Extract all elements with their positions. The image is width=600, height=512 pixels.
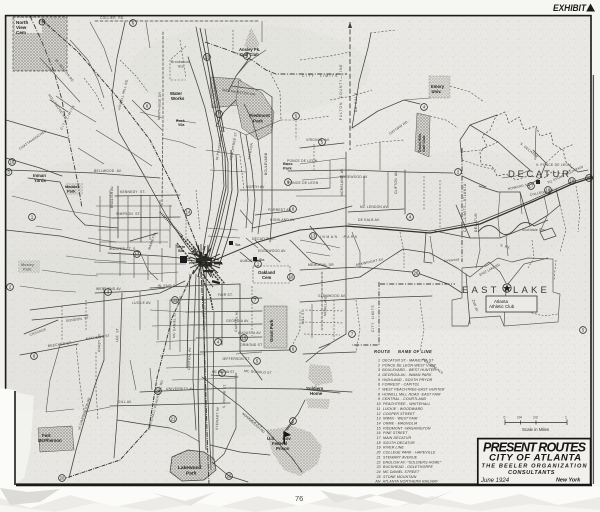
svg-text:LEE ST.: LEE ST. [115, 327, 120, 342]
svg-text:BELLWOOD AV.: BELLWOOD AV. [94, 169, 122, 173]
svg-text:NORTH AV: NORTH AV [246, 185, 265, 189]
svg-text:13 IRWIN - WEST FAIR: 13 IRWIN - WEST FAIR [377, 417, 418, 421]
svg-text:DECATUR ST.: DECATUR ST. [252, 237, 276, 241]
svg-text:VIRGINIA AV.: VIRGINIA AV. [306, 138, 330, 142]
svg-text:MORELAND AV.: MORELAND AV. [340, 168, 344, 196]
svg-text:16: 16 [10, 160, 15, 165]
svg-text:17 MAIN DECATUR: 17 MAIN DECATUR [377, 436, 412, 440]
svg-text:10: 10 [289, 275, 294, 280]
svg-text:AUGUSTA AV: AUGUSTA AV [238, 331, 261, 335]
svg-text:EDGEWOOD AV: EDGEWOOD AV [340, 175, 368, 179]
svg-text:4 GEORGIA AV.- INMAN PARK: 4 GEORGIA AV.- INMAN PARK [378, 373, 432, 377]
svg-text:S. PRYOR ST.: S. PRYOR ST. [222, 384, 227, 408]
svg-text:ORMOND ST: ORMOND ST [240, 343, 262, 347]
svg-text:V. PONCE DE LEON: V. PONCE DE LEON [536, 163, 571, 167]
svg-text:7 WEST PEACHTREE-EAST HUNTER: 7 WEST PEACHTREE-EAST HUNTER [378, 388, 445, 392]
svg-text:STEWART AV: STEWART AV [215, 406, 220, 430]
svg-text:CITY LIMITS: CITY LIMITS [302, 74, 339, 78]
svg-text:24 MC DANIEL STREET: 24 MC DANIEL STREET [376, 470, 420, 474]
svg-text:RockVlla: RockVlla [176, 119, 185, 127]
svg-text:W. FAIR ST.: W. FAIR ST. [158, 284, 179, 288]
svg-text:5 HIGHLAND - SOUTH PRYOR: 5 HIGHLAND - SOUTH PRYOR [378, 378, 433, 382]
svg-text:17: 17 [529, 184, 534, 189]
svg-text:18 SOUTH DECATUR: 18 SOUTH DECATUR [377, 441, 416, 445]
svg-text:25 STONE MOUNTAIN: 25 STONE MOUNTAIN [376, 475, 417, 479]
svg-text:GLENWOOD AV.: GLENWOOD AV. [318, 294, 346, 298]
svg-text:Sta: Sta [235, 243, 240, 247]
svg-text:THE BEELER ORGANIZATION: THE BEELER ORGANIZATION [482, 463, 588, 469]
svg-text:ASHBY ST.: ASHBY ST. [97, 333, 102, 352]
svg-text:ROUTE NAME OF LINE: ROUTE NAME OF LINE [374, 349, 432, 354]
svg-text:18: 18 [570, 179, 575, 184]
svg-text:1/4: 1/4 [517, 416, 522, 420]
svg-text:1/2: 1/2 [533, 416, 538, 420]
svg-text:21 STEWART AVENUE: 21 STEWART AVENUE [376, 455, 418, 459]
svg-text:1 DECATUR ST.- MARIETTA ST: 1 DECATUR ST.- MARIETTA ST [378, 358, 434, 362]
svg-text:13: 13 [135, 252, 140, 257]
svg-text:12 COOPER STREET: 12 COOPER STREET [377, 412, 416, 416]
svg-text:FAIR ST.: FAIR ST. [218, 293, 233, 297]
svg-text:20 COLLEGE PARK - HAPEVILLE: 20 COLLEGE PARK - HAPEVILLE [376, 451, 436, 455]
svg-text:21: 21 [171, 417, 176, 422]
svg-text:CITY LIMITS: CITY LIMITS [371, 305, 375, 332]
svg-text:15: 15 [242, 336, 247, 341]
svg-text:22 ENGLISH AV.-"SOLDIERS HOME: 22 ENGLISH AV.-"SOLDIERS HOME" [376, 460, 442, 464]
svg-text:COLLIER RD.: COLLIER RD. [100, 16, 125, 20]
svg-text:DE KALB AV.: DE KALB AV. [358, 218, 380, 222]
svg-text:CITY OF ATLANTA: CITY OF ATLANTA [489, 452, 581, 463]
svg-text:EDGEWOOD AV.: EDGEWOOD AV. [258, 249, 286, 253]
svg-text:InmanYards: InmanYards [33, 173, 47, 183]
svg-text:June 1924: June 1924 [480, 478, 510, 484]
svg-text:MEMORIAL DR: MEMORIAL DR [308, 263, 334, 267]
svg-text:1: 1 [565, 416, 567, 420]
svg-text:8 HOWELL MILL ROAD -EAST FAIR: 8 HOWELL MILL ROAD -EAST FAIR [378, 392, 441, 396]
svg-text:15 PIEDMONT -WASHINGTON: 15 PIEDMONT -WASHINGTON [377, 426, 431, 430]
svg-text:LAKE: LAKE [513, 285, 550, 296]
svg-text:CONSULTANTS: CONSULTANTS [508, 470, 555, 476]
svg-text:Druid HillsGolf Club: Druid HillsGolf Club [418, 134, 426, 152]
svg-text:Ansley Pk.Golf Club: Ansley Pk.Golf Club [239, 47, 260, 57]
svg-text:Sta: Sta [178, 65, 184, 69]
svg-text:Brookwood: Brookwood [171, 60, 190, 64]
svg-text:FULTON COUNTY—LINE: FULTON COUNTY—LINE [339, 64, 343, 120]
svg-text:BOULEVARD: BOULEVARD [264, 152, 268, 175]
svg-text:LUCILE AV.: LUCILE AV. [132, 301, 152, 305]
svg-text:CLIFTON AV.: CLIFTON AV. [394, 171, 398, 194]
svg-text:9 CENTRAL - COURTLAND: 9 CENTRAL - COURTLAND [378, 397, 427, 401]
svg-text:New York: New York [556, 478, 581, 484]
svg-text:20: 20 [60, 476, 65, 481]
svg-text:PONCE DE LEON: PONCE DE LEON [287, 159, 318, 163]
svg-text:11: 11 [173, 298, 178, 303]
svg-text:11 LUCKIE - WOODWARD: 11 LUCKIE - WOODWARD [377, 407, 424, 411]
svg-text:2 PONCE DE LEON-WEST VIEW: 2 PONCE DE LEON-WEST VIEW [377, 363, 436, 367]
svg-text:16: 16 [546, 188, 551, 193]
svg-text:25: 25 [227, 474, 232, 479]
svg-text:DILL AV.: DILL AV. [118, 400, 132, 404]
svg-text:26: 26 [414, 271, 419, 276]
svg-text:MC LENDON AV.: MC LENDON AV. [360, 205, 389, 209]
svg-text:23 BUCKHEAD - OGLETHORPE: 23 BUCKHEAD - OGLETHORPE [376, 465, 434, 469]
svg-text:16 PINE STREET: 16 PINE STREET [377, 431, 409, 435]
svg-text:DECATUR: DECATUR [474, 213, 478, 232]
svg-text:HILL ST: HILL ST [301, 310, 305, 324]
svg-text:14: 14 [186, 210, 191, 215]
svg-text:10 PEACHTREE - WHITEHALL: 10 PEACHTREE - WHITEHALL [377, 402, 431, 406]
svg-text:ENGLISH AV.: ENGLISH AV. [110, 185, 114, 208]
svg-text:MORELAND: MORELAND [323, 295, 328, 316]
svg-text:FORREST AV.: FORREST AV. [268, 208, 292, 212]
svg-text:24: 24 [156, 389, 161, 394]
svg-text:6 FORREST - CAPITOL: 6 FORREST - CAPITOL [378, 383, 420, 387]
svg-text:CENTRAL AV: CENTRAL AV [187, 347, 192, 370]
svg-text:Scale in Miles: Scale in Miles [522, 427, 550, 432]
svg-text:GEORGIA AV.: GEORGIA AV. [226, 319, 249, 323]
svg-text:UNIVERSITY AV.: UNIVERSITY AV. [166, 387, 195, 391]
svg-text:MC MILLAN ST: MC MILLAN ST [212, 370, 234, 374]
svg-text:14 ORME - MAGNOLIA: 14 ORME - MAGNOLIA [377, 422, 418, 426]
svg-text:JEFFERSON ST.: JEFFERSON ST. [222, 357, 251, 361]
svg-text:EXHIBIT: EXHIBIT [553, 3, 587, 13]
svg-text:Grant Park: Grant Park [269, 319, 274, 342]
svg-text:3 BOULEVARD - WEST HUNTER: 3 BOULEVARD - WEST HUNTER [378, 368, 436, 372]
svg-text:CITY—LIMITS—ATLANTA: CITY—LIMITS—ATLANTA [463, 183, 467, 232]
svg-text:SIMPSON ST.: SIMPSON ST. [116, 212, 141, 216]
svg-text:AN ATLANTA NORTHERN RAILWAY: AN ATLANTA NORTHERN RAILWAY [374, 480, 438, 484]
svg-text:19 RIVER LINE: 19 RIVER LINE [377, 446, 405, 450]
svg-text:KENNEDY ST.: KENNEDY ST. [120, 190, 146, 194]
svg-text:76: 76 [295, 494, 303, 503]
svg-text:PONCE DE LEON: PONCE DE LEON [288, 181, 319, 185]
svg-text:Scottdale Sta.: Scottdale Sta. [522, 228, 546, 232]
svg-text:HIGHLAND AV.: HIGHLAND AV. [270, 218, 296, 222]
svg-text:DE KALB: DE KALB [354, 92, 358, 112]
svg-text:0: 0 [504, 416, 506, 420]
svg-text:RN: RN [39, 20, 45, 25]
svg-text:13: 13 [311, 234, 316, 239]
svg-text:23: 23 [205, 55, 210, 60]
svg-text:INMAN PARK: INMAN PARK [320, 235, 359, 239]
svg-text:HUNTER ST. S: HUNTER ST. S [110, 247, 136, 251]
svg-text:DECATUR: DECATUR [508, 169, 571, 180]
